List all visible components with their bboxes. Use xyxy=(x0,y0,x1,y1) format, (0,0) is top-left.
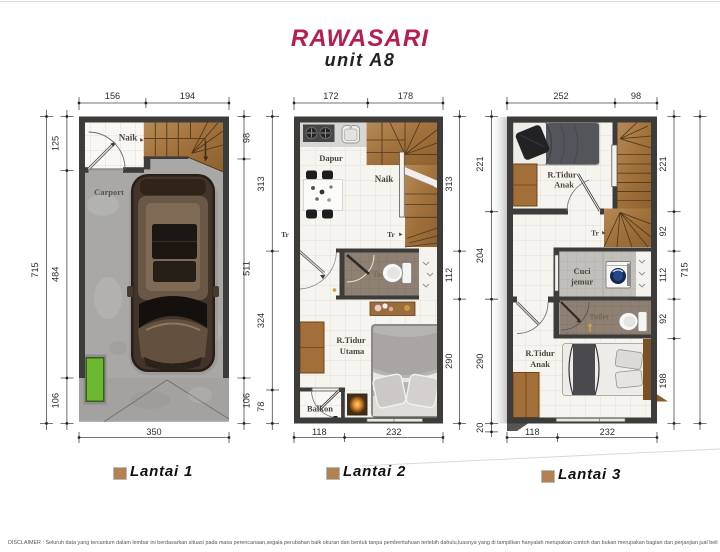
svg-text:jemur: jemur xyxy=(570,277,593,287)
svg-text:Cuci: Cuci xyxy=(574,266,592,276)
svg-text:Toilet: Toilet xyxy=(589,313,609,322)
svg-text:Dapur: Dapur xyxy=(319,153,343,163)
svg-text:252: 252 xyxy=(553,91,568,101)
svg-text:204: 204 xyxy=(475,248,485,263)
svg-text:Tr: Tr xyxy=(387,230,395,239)
svg-text:Utama: Utama xyxy=(340,346,365,356)
svg-text:511: 511 xyxy=(242,261,252,276)
svg-text:118: 118 xyxy=(312,427,327,437)
svg-text:290: 290 xyxy=(475,354,485,369)
svg-text:715: 715 xyxy=(30,262,40,277)
svg-text:172: 172 xyxy=(323,91,338,101)
svg-text:221: 221 xyxy=(475,156,485,171)
svg-text:Naik: Naik xyxy=(119,133,138,143)
svg-text:313: 313 xyxy=(256,176,266,191)
svg-text:290: 290 xyxy=(444,354,454,369)
svg-text:106: 106 xyxy=(51,393,61,408)
svg-text:125: 125 xyxy=(51,136,61,151)
svg-text:R.Tidur: R.Tidur xyxy=(525,348,555,358)
svg-text:118: 118 xyxy=(525,427,540,437)
svg-text:Anak: Anak xyxy=(554,180,574,190)
svg-text:98: 98 xyxy=(242,133,252,143)
svg-text:232: 232 xyxy=(386,427,401,437)
svg-text:484: 484 xyxy=(51,267,61,282)
svg-text:20: 20 xyxy=(475,423,485,433)
svg-text:Carport: Carport xyxy=(94,187,124,197)
svg-text:350: 350 xyxy=(146,427,161,437)
svg-text:106: 106 xyxy=(242,393,252,408)
svg-text:Anak: Anak xyxy=(530,359,550,369)
svg-text:98: 98 xyxy=(631,91,641,101)
svg-text:92: 92 xyxy=(658,314,668,324)
svg-text:178: 178 xyxy=(398,91,413,101)
svg-text:Balkon: Balkon xyxy=(307,404,333,414)
svg-text:112: 112 xyxy=(658,268,668,283)
svg-text:198: 198 xyxy=(658,373,668,388)
svg-text:92: 92 xyxy=(658,226,668,236)
svg-text:78: 78 xyxy=(256,402,266,412)
svg-text:324: 324 xyxy=(256,313,266,328)
svg-text:112: 112 xyxy=(444,268,454,283)
svg-text:194: 194 xyxy=(180,91,195,101)
svg-text:313: 313 xyxy=(444,176,454,191)
svg-text:Tr: Tr xyxy=(281,230,289,239)
svg-text:R.Tidur: R.Tidur xyxy=(547,170,577,180)
svg-text:156: 156 xyxy=(105,91,120,101)
svg-text:221: 221 xyxy=(658,156,668,171)
svg-text:232: 232 xyxy=(600,427,615,437)
svg-text:Tr: Tr xyxy=(591,229,599,238)
svg-text:Naik: Naik xyxy=(375,174,394,184)
svg-text:715: 715 xyxy=(680,262,690,277)
svg-text:R.Tidur: R.Tidur xyxy=(336,335,366,345)
